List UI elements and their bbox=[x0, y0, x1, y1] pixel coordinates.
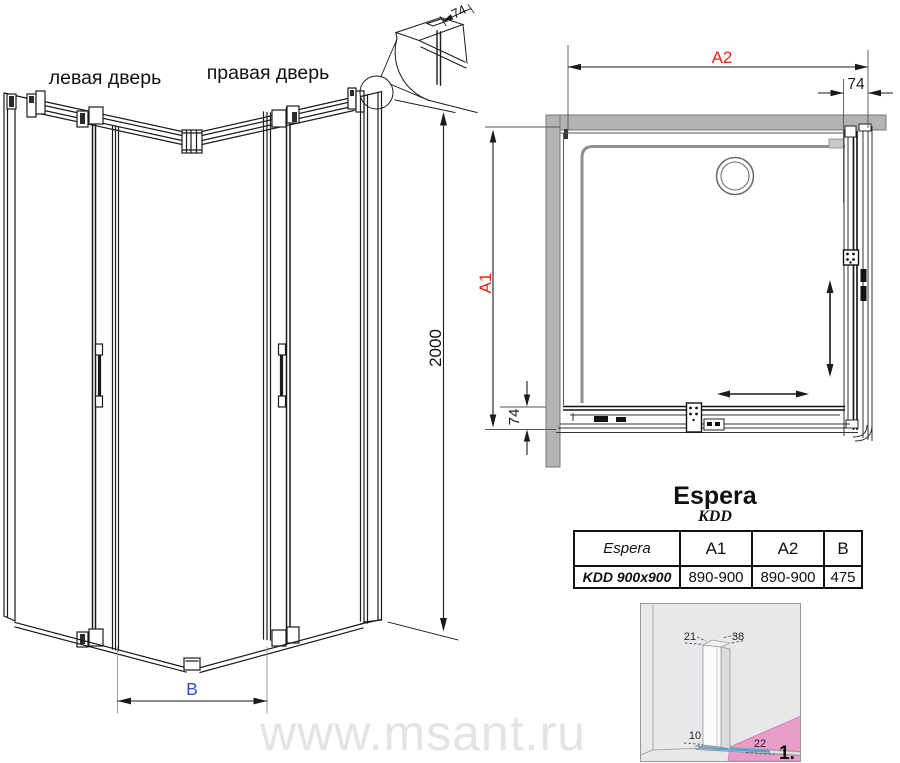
detail-step-number: 1. bbox=[779, 743, 795, 762]
spec-table: Espera A1 A2 B KDD 900x900 890-900 890-9… bbox=[573, 530, 863, 589]
plan-right-track bbox=[844, 124, 873, 441]
spec-header-series: Espera bbox=[574, 531, 680, 566]
slide-direction-arrows bbox=[717, 280, 834, 398]
bottom-left-74-text: 74 bbox=[506, 409, 523, 426]
a2-dim-text: A2 bbox=[712, 48, 733, 67]
shower-tray bbox=[560, 133, 845, 405]
detail-dim-38: 38 bbox=[732, 631, 744, 643]
height-dim-text: 2000 bbox=[426, 329, 445, 367]
right-fixed-panel bbox=[361, 92, 382, 624]
left-fixed-panel bbox=[4, 93, 28, 621]
spec-header-a1: A1 bbox=[680, 531, 752, 566]
detail-dim-21: 21 bbox=[684, 631, 696, 643]
height-dimension bbox=[388, 100, 458, 640]
enclosure-line-art bbox=[4, 5, 477, 714]
spec-header-a2: A2 bbox=[752, 531, 824, 566]
corner-post bbox=[182, 130, 202, 153]
product-block: Espera KDD Espera A1 A2 B KDD 900x900 89… bbox=[573, 484, 857, 589]
spec-model-cell: KDD 900x900 bbox=[574, 566, 680, 588]
left-door-label: левая дверь bbox=[49, 67, 162, 89]
perspective-view-svg: левая дверь правая дверь 2000 B 74 bbox=[0, 0, 480, 763]
bottom-rail bbox=[15, 623, 363, 673]
install-detail-svg: 21 38 10 22 1. bbox=[640, 603, 801, 762]
plan-walls bbox=[546, 115, 886, 467]
plan-labels: A2 74 A1 74 bbox=[476, 48, 865, 425]
detail-wall-profile bbox=[703, 640, 730, 749]
product-series-title: Espera bbox=[573, 484, 857, 509]
width-dim-text: B bbox=[186, 679, 198, 699]
product-model-subtitle: KDD bbox=[573, 509, 857, 525]
detail-dim-22: 22 bbox=[754, 738, 766, 750]
perspective-labels: левая дверь правая дверь 2000 B 74 bbox=[49, 2, 469, 699]
right-door-handle bbox=[279, 344, 286, 407]
detail-dim-10: 10 bbox=[689, 730, 701, 742]
top-right-74-text: 74 bbox=[847, 76, 865, 93]
right-door-label: правая дверь bbox=[207, 62, 330, 84]
left-door bbox=[77, 107, 119, 651]
top-rail-left bbox=[27, 91, 182, 145]
spec-header-b: B bbox=[824, 531, 862, 566]
drain-circle bbox=[721, 162, 749, 190]
a1-dim-text: A1 bbox=[476, 273, 495, 294]
plan-bottom-track bbox=[556, 403, 858, 433]
left-door-handle bbox=[96, 344, 103, 407]
spec-b-cell: 475 bbox=[824, 566, 862, 588]
plan-view-svg: A2 74 A1 74 bbox=[470, 30, 900, 480]
install-detail-figure: 21 38 10 22 1. bbox=[640, 603, 801, 762]
screenshot-stage: www.msant.ru bbox=[0, 0, 900, 763]
spec-table-data-row: KDD 900x900 890-900 890-900 475 bbox=[574, 566, 862, 588]
spec-table-header-row: Espera A1 A2 B bbox=[574, 531, 862, 566]
spec-a1-cell: 890-900 bbox=[680, 566, 752, 588]
spec-a2-cell: 890-900 bbox=[752, 566, 824, 588]
